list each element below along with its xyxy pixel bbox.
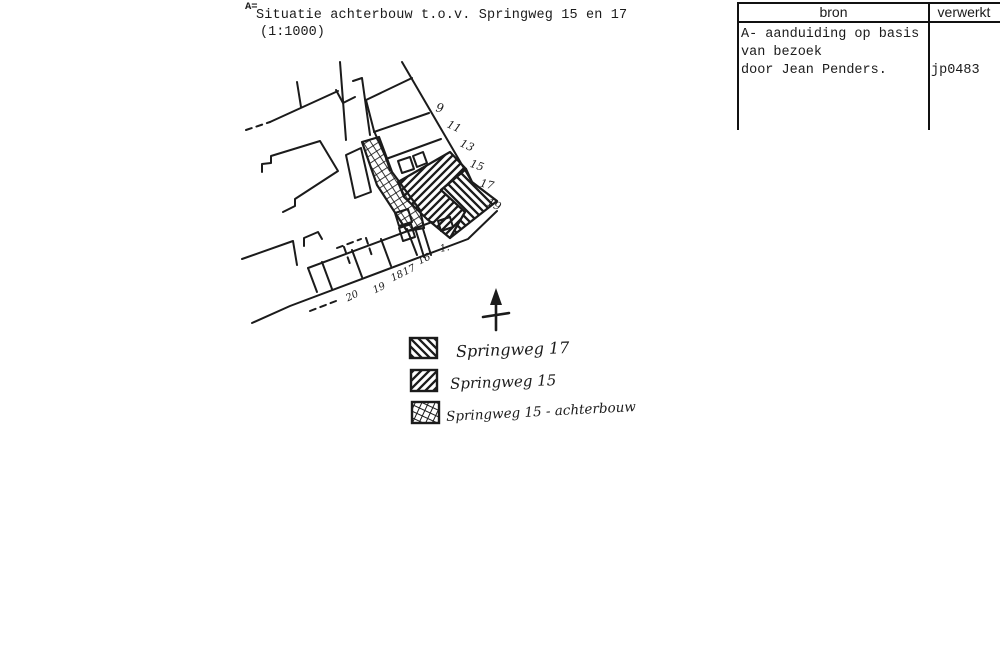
legend-label-springweg-15: Springweg 15: [450, 371, 557, 393]
bron-text-line-1: A- aanduiding op basis: [741, 27, 919, 42]
north-arrow-icon: [483, 288, 509, 330]
table-header-separator: [737, 21, 1000, 23]
legend-swatch-springweg-17: [410, 338, 437, 358]
table-header-verwerkt: verwerkt: [930, 4, 998, 20]
bron-text-line-2: van bezoek: [741, 45, 822, 60]
drawing-scale: (1:1000): [260, 25, 325, 40]
situation-map-drawing: [0, 0, 1000, 650]
legend-swatches: [410, 338, 439, 423]
bron-text-line-3: door Jean Penders.: [741, 63, 887, 78]
table-column-divider: [928, 2, 930, 130]
legend-swatch-springweg-15: [411, 370, 437, 391]
legend-swatch-achterbouw: [412, 402, 439, 423]
table-border-left: [737, 2, 739, 130]
scanned-situation-sheet: A= Situatie achterbouw t.o.v. Springweg …: [0, 0, 1000, 650]
drawing-title: Situatie achterbouw t.o.v. Springweg 15 …: [256, 8, 627, 23]
table-header-bron: bron: [739, 4, 928, 20]
verwerkt-value: jp0483: [931, 63, 980, 78]
legend-label-springweg-17: Springweg 17: [456, 338, 570, 361]
house-number: 1.: [439, 242, 451, 255]
